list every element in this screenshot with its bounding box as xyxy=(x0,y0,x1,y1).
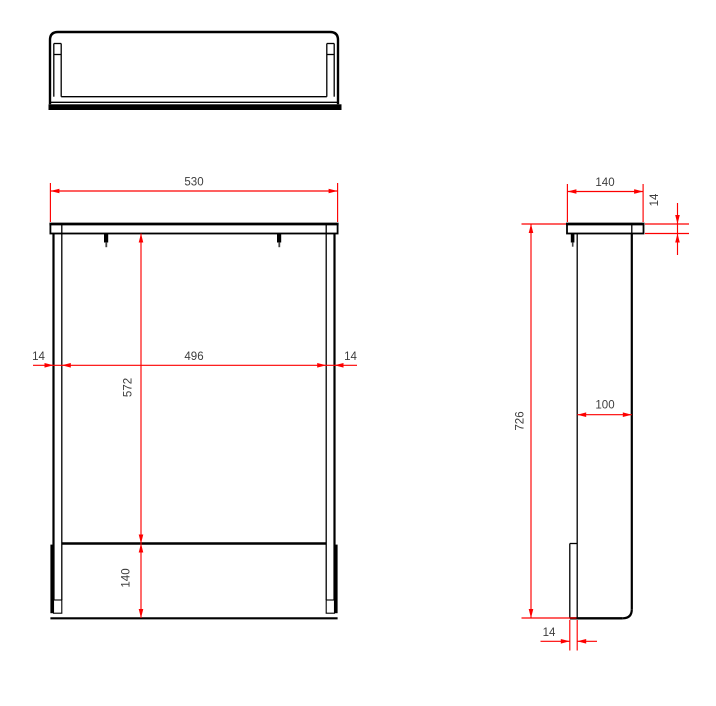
dim-arrow xyxy=(634,189,643,194)
dim-side-top-depth: 140 xyxy=(567,177,643,222)
top-view xyxy=(49,32,342,110)
dim-label-overall-width: 530 xyxy=(184,177,203,189)
dim-label-top-thickness: 14 xyxy=(649,193,661,206)
technical-drawing-canvas: 530 14 496 14 572 140 140 14 xyxy=(0,0,716,706)
dim-arrow xyxy=(317,363,326,368)
front-top-board xyxy=(50,224,337,234)
dim-side-overall-height: 726 xyxy=(515,224,577,618)
side-view xyxy=(566,224,645,618)
dim-arrow xyxy=(577,639,586,644)
dim-side-top-thickness: 14 xyxy=(645,193,689,255)
dim-label-inner-width: 496 xyxy=(184,351,203,363)
front-right-foot-notch xyxy=(326,600,334,613)
side-hook xyxy=(571,234,575,247)
dim-arrow xyxy=(623,412,632,417)
dim-front-opening-height: 572 xyxy=(123,234,144,544)
dim-arrow xyxy=(675,215,680,224)
dim-arrow xyxy=(675,234,680,243)
dim-label-top-depth: 140 xyxy=(595,177,614,189)
front-right-hook xyxy=(277,234,281,248)
front-left-hook xyxy=(104,234,108,248)
dim-label-right-panel-thickness: 14 xyxy=(344,351,357,363)
dim-label-rail-thickness: 14 xyxy=(543,627,556,639)
top-left-side-panel-edge xyxy=(54,44,61,97)
dim-side-rail-thickness: 14 xyxy=(541,620,598,651)
dim-arrow xyxy=(529,609,534,618)
dim-front-inner-width: 14 496 14 xyxy=(32,351,357,368)
dim-arrow xyxy=(335,363,344,368)
dim-arrow xyxy=(139,544,144,553)
dim-arrow xyxy=(62,363,71,368)
dim-arrow xyxy=(50,189,59,194)
top-outline xyxy=(50,32,338,104)
front-view xyxy=(49,224,338,618)
top-right-side-panel-edge xyxy=(327,44,334,97)
side-panel-bottom-corner xyxy=(623,609,632,618)
dim-front-rail-height: 140 xyxy=(121,544,144,619)
dim-label-rail-height: 140 xyxy=(121,568,133,587)
dim-arrow xyxy=(139,234,144,243)
dim-arrow xyxy=(139,535,144,544)
dim-arrow xyxy=(329,189,338,194)
top-rail-bar xyxy=(49,104,342,110)
dim-arrow xyxy=(577,412,586,417)
dim-arrow xyxy=(567,189,576,194)
dim-front-overall-width: 530 xyxy=(50,177,337,223)
dim-arrow xyxy=(139,609,144,618)
front-left-foot-notch xyxy=(54,600,62,613)
dim-arrow xyxy=(45,363,54,368)
dim-arrow xyxy=(529,224,534,233)
dim-label-left-panel-thickness: 14 xyxy=(32,351,45,363)
dim-label-opening-height: 572 xyxy=(123,378,135,397)
dim-side-panel-depth: 100 xyxy=(577,400,632,418)
dim-arrow xyxy=(561,639,570,644)
dim-label-panel-depth: 100 xyxy=(595,400,614,412)
dim-label-overall-height: 726 xyxy=(515,411,527,430)
